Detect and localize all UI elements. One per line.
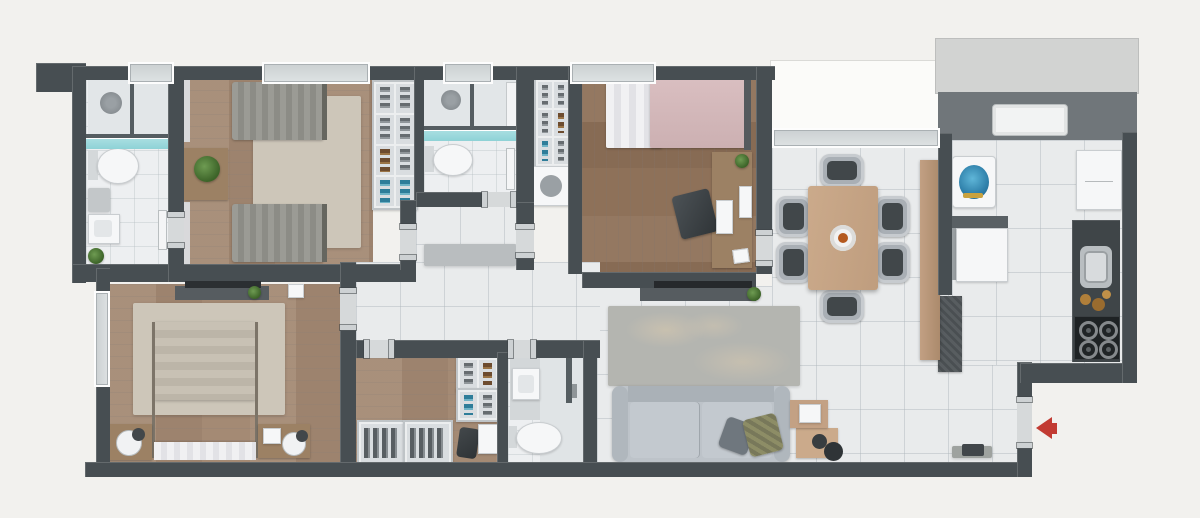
wardrobe	[534, 78, 572, 168]
vanity-sink	[532, 166, 570, 206]
dining-chair	[875, 242, 910, 283]
closet-shelf-unit	[403, 420, 453, 466]
wardrobe-shelf	[538, 138, 552, 164]
wall	[938, 133, 952, 295]
sofa-cushion	[630, 402, 700, 458]
wall	[756, 66, 772, 230]
wall-frame	[288, 284, 304, 298]
master-bed-foot	[154, 442, 256, 460]
wall	[516, 258, 534, 270]
laundry-item	[963, 193, 983, 198]
wall	[1122, 132, 1137, 383]
door-jamb	[400, 255, 416, 260]
lamp-shade	[132, 428, 145, 441]
door-jamb	[1017, 397, 1032, 402]
sink-basin	[94, 220, 112, 237]
window	[570, 62, 656, 84]
ironing-board	[478, 424, 498, 454]
toilet	[516, 422, 562, 454]
wall	[168, 248, 184, 282]
door-leaf	[158, 210, 167, 250]
wardrobe-shelf	[554, 110, 568, 136]
wall	[340, 262, 356, 288]
lamp-shade	[296, 430, 308, 442]
closet-shelf	[479, 392, 496, 418]
food-item	[1102, 290, 1111, 299]
floor-plan	[0, 0, 1200, 518]
door-jamb	[756, 261, 772, 266]
burner-icon	[1079, 340, 1098, 359]
door-leaf	[506, 148, 515, 190]
dining-chair	[875, 196, 910, 237]
wall	[356, 340, 364, 358]
bed-headboard	[744, 78, 751, 150]
plant-icon	[248, 286, 261, 299]
shower-glass-teal	[424, 130, 516, 141]
counter-cabinet	[1076, 150, 1122, 210]
photo-frame	[799, 404, 821, 423]
shower-glass	[130, 78, 134, 136]
wall	[583, 340, 597, 465]
window	[128, 62, 174, 84]
sink	[512, 368, 540, 400]
cooktop	[1074, 316, 1120, 360]
closet-shelf	[479, 360, 496, 388]
wardrobe-shelf	[376, 115, 394, 144]
shower-glass	[470, 78, 474, 126]
shower-handle	[572, 384, 577, 398]
closet-bench	[456, 427, 480, 459]
wardrobe-shelf	[396, 146, 414, 175]
sofa-back	[628, 386, 774, 402]
sink-basin	[1084, 251, 1108, 283]
master-bed-blanket	[154, 322, 256, 400]
door-jamb	[340, 325, 356, 330]
wardrobe	[372, 80, 418, 210]
entry-arrow-icon	[1036, 417, 1052, 439]
washing-machine	[952, 156, 996, 208]
entry-door-opening	[1017, 397, 1032, 448]
wall	[72, 66, 86, 283]
wardrobe-shelf	[396, 115, 414, 144]
wall	[168, 66, 184, 212]
photo-frame	[263, 428, 281, 444]
closet-shelf	[460, 360, 477, 388]
door-jamb	[482, 192, 487, 207]
wall	[497, 352, 508, 465]
door-jamb	[756, 230, 772, 235]
wall	[516, 202, 534, 224]
mat-bathroom-1	[88, 188, 110, 212]
wall	[340, 330, 356, 465]
door-jamb	[531, 340, 536, 358]
door-jamb	[168, 212, 184, 217]
bed-foot	[322, 82, 327, 140]
pantry-cabinet	[938, 296, 962, 372]
wardrobe-shelf	[396, 84, 414, 113]
wall	[756, 266, 772, 274]
kitchen-shelf	[946, 216, 1008, 228]
sofa-armrest	[612, 386, 628, 462]
dining-chair	[776, 242, 811, 283]
twin-bed-blanket	[232, 82, 324, 140]
closet-shelf	[361, 424, 403, 462]
window-dining	[772, 128, 940, 148]
bed-foot	[322, 204, 327, 262]
shower-glass-teal	[86, 138, 170, 149]
door-jamb	[168, 243, 184, 248]
door-jamb	[511, 192, 516, 207]
wardrobe-shelf	[376, 146, 394, 175]
plant-icon	[735, 154, 749, 168]
food-item	[1092, 298, 1105, 311]
wardrobe-shelf	[376, 84, 394, 113]
door-jamb	[400, 224, 416, 229]
wall	[72, 264, 416, 282]
cabinet-line	[1085, 181, 1113, 182]
dining-chair	[776, 196, 811, 237]
shower-head-icon	[441, 90, 461, 110]
entry-arrow-tail	[1051, 423, 1057, 434]
wardrobe-shelf	[538, 82, 552, 108]
door-jamb	[389, 340, 394, 358]
decor-ball	[824, 442, 843, 461]
wall	[1020, 363, 1137, 383]
sink-basin	[518, 375, 534, 393]
shoe-rack	[962, 444, 984, 456]
plant-icon	[88, 248, 104, 264]
mat-corridor	[424, 244, 516, 266]
wardrobe-shelf	[538, 110, 552, 136]
toilet	[97, 148, 139, 184]
plant-icon	[747, 287, 761, 301]
dining-chair	[820, 290, 864, 323]
ac-unit	[992, 104, 1068, 136]
food-item	[1080, 294, 1091, 305]
window	[443, 62, 493, 84]
centerpiece-fruit	[838, 233, 848, 243]
notepad	[732, 248, 750, 264]
wall	[85, 462, 1032, 477]
door-jamb	[516, 224, 534, 229]
wall	[568, 66, 582, 274]
window	[262, 62, 370, 84]
wall	[394, 340, 508, 358]
burner-icon	[1099, 340, 1118, 359]
bed-headboard	[184, 80, 190, 142]
tv-console	[640, 288, 756, 301]
bed-headboard	[184, 202, 190, 264]
closet-shelf-unit	[456, 388, 500, 422]
double-bed-blanket	[650, 80, 746, 148]
dining-chair	[820, 154, 864, 187]
wall	[96, 268, 110, 293]
closet-shelf	[460, 392, 477, 418]
wardrobe-shelf	[554, 82, 568, 108]
kitchen-cabinet	[956, 228, 1008, 282]
burner-icon	[1099, 321, 1118, 340]
rug-living	[608, 306, 800, 386]
sink-basin	[540, 175, 562, 197]
door-jamb	[340, 288, 356, 293]
door-jamb	[508, 340, 513, 358]
wall	[1017, 448, 1032, 477]
burner-icon	[1079, 321, 1098, 340]
wardrobe-shelf	[376, 177, 394, 206]
closet-shelf-unit	[456, 356, 500, 392]
door-jamb	[364, 340, 369, 358]
shower-head-icon	[100, 92, 122, 114]
kitchen-sink	[1080, 246, 1112, 288]
bed-rail	[152, 322, 155, 458]
wall	[516, 66, 534, 202]
laptop	[716, 200, 733, 234]
wall	[414, 66, 424, 202]
balcony	[770, 60, 940, 132]
twin-bed-blanket	[232, 204, 324, 262]
wall	[400, 200, 416, 224]
door-opening	[340, 288, 356, 330]
door-jamb	[1017, 443, 1032, 448]
window	[94, 291, 110, 387]
toilet	[433, 144, 473, 176]
wall	[416, 192, 482, 207]
sink	[88, 214, 120, 244]
sideboard	[920, 160, 940, 360]
wardrobe-shelf	[554, 138, 568, 164]
door-jamb	[516, 253, 534, 258]
service-slab	[935, 38, 1139, 94]
plant-icon	[194, 156, 220, 182]
mirror	[739, 186, 752, 218]
closet-shelf	[407, 424, 449, 462]
tv-icon	[654, 281, 752, 288]
closet-shelf-unit	[357, 420, 407, 466]
wall	[400, 260, 416, 270]
